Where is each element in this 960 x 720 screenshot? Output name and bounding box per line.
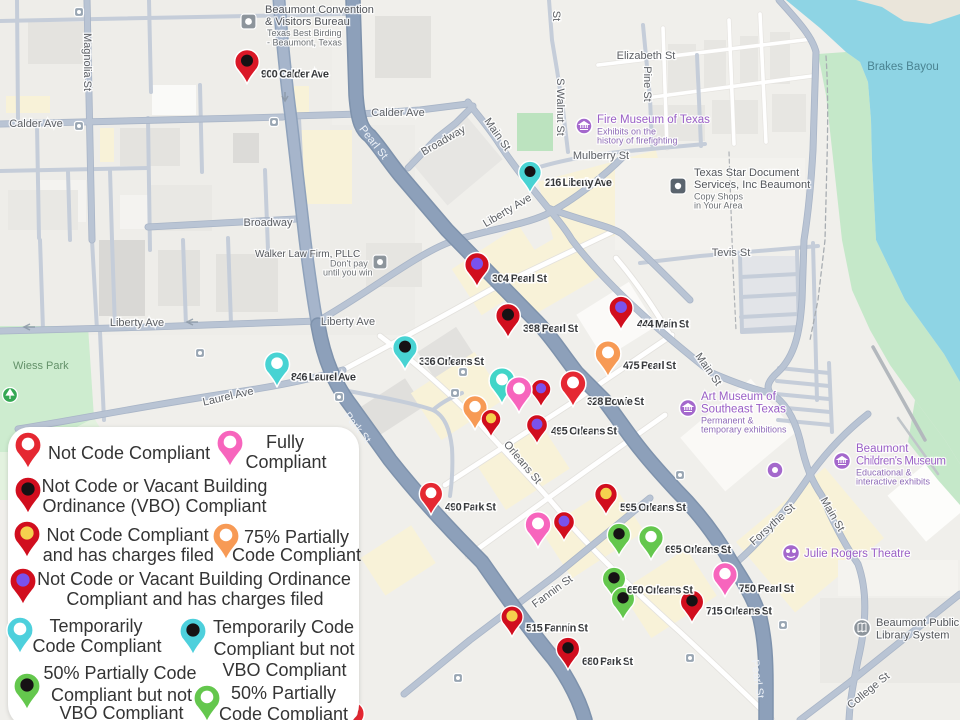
svg-text:Beaumont: Beaumont (856, 443, 909, 455)
svg-text:490 Park St: 490 Park St (445, 502, 496, 514)
svg-text:846 Laurel Ave: 846 Laurel Ave (291, 372, 356, 384)
svg-text:- Beaumont, Texas: - Beaumont, Texas (267, 38, 342, 48)
svg-text:S Walnut St: S Walnut St (554, 78, 566, 136)
svg-text:475 Pearl St: 475 Pearl St (623, 360, 676, 372)
svg-text:Broadway: Broadway (244, 217, 293, 229)
svg-text:Calder Ave: Calder Ave (371, 107, 425, 119)
svg-text:695 Orleans St: 695 Orleans St (665, 544, 731, 556)
svg-text:328 Bowie St: 328 Bowie St (587, 396, 644, 408)
svg-text:444 Main St: 444 Main St (637, 319, 689, 331)
svg-text:Liberty Ave: Liberty Ave (321, 316, 375, 328)
svg-text:Library System: Library System (876, 630, 949, 642)
svg-text:Texas Star Document: Texas Star Document (694, 167, 799, 179)
svg-text:Calder Ave: Calder Ave (9, 118, 63, 130)
svg-text:in Your Area: in Your Area (694, 201, 743, 211)
svg-text:Beaumont Convention: Beaumont Convention (265, 4, 374, 16)
svg-text:St: St (550, 11, 562, 21)
svg-text:& Visitors Bureau: & Visitors Bureau (265, 16, 350, 28)
svg-text:Liberty Ave: Liberty Ave (110, 317, 164, 329)
svg-text:until you win: until you win (323, 268, 373, 278)
svg-text:398 Pearl St: 398 Pearl St (523, 323, 578, 335)
svg-text:interactive exhibits: interactive exhibits (856, 477, 931, 487)
svg-text:history of firefighting: history of firefighting (597, 136, 678, 146)
svg-text:Texas Best Birding: Texas Best Birding (267, 28, 342, 38)
svg-text:Services, Inc Beaumont: Services, Inc Beaumont (694, 179, 810, 191)
svg-text:216 Liberty Ave: 216 Liberty Ave (545, 177, 612, 189)
svg-text:Julie Rogers Theatre: Julie Rogers Theatre (804, 548, 911, 560)
svg-text:336 Orleans St: 336 Orleans St (419, 356, 484, 368)
svg-text:Elizabeth St: Elizabeth St (617, 50, 676, 62)
svg-text:515 Fannin St: 515 Fannin St (526, 623, 588, 635)
svg-text:750 Pearl St: 750 Pearl St (739, 583, 794, 595)
svg-text:680 Park St: 680 Park St (582, 656, 633, 668)
svg-text:Magnolia St: Magnolia St (81, 33, 93, 91)
svg-text:Art Museum of: Art Museum of (701, 391, 777, 403)
svg-text:Wiess Park: Wiess Park (13, 360, 69, 372)
svg-text:Mulberry St: Mulberry St (573, 150, 629, 162)
svg-text:900 Calder Ave: 900 Calder Ave (261, 69, 329, 81)
svg-text:Brakes Bayou: Brakes Bayou (867, 61, 939, 73)
svg-text:temporary exhibitions: temporary exhibitions (701, 425, 787, 435)
svg-text:495 Orleans St: 495 Orleans St (551, 426, 617, 438)
svg-text:715 Orleans St: 715 Orleans St (706, 606, 772, 618)
svg-text:Children's Museum: Children's Museum (856, 456, 946, 468)
svg-text:Pine St: Pine St (641, 66, 653, 101)
svg-text:Southeast Texas: Southeast Texas (701, 404, 786, 416)
svg-text:Beaumont Public: Beaumont Public (876, 617, 960, 629)
svg-text:650 Orleans St: 650 Orleans St (627, 585, 693, 597)
svg-text:Tevis St: Tevis St (712, 247, 751, 259)
svg-text:Fire Museum of Texas: Fire Museum of Texas (597, 114, 710, 126)
svg-text:304 Pearl St: 304 Pearl St (492, 273, 547, 285)
svg-text:595 Orleans St: 595 Orleans St (620, 502, 686, 514)
